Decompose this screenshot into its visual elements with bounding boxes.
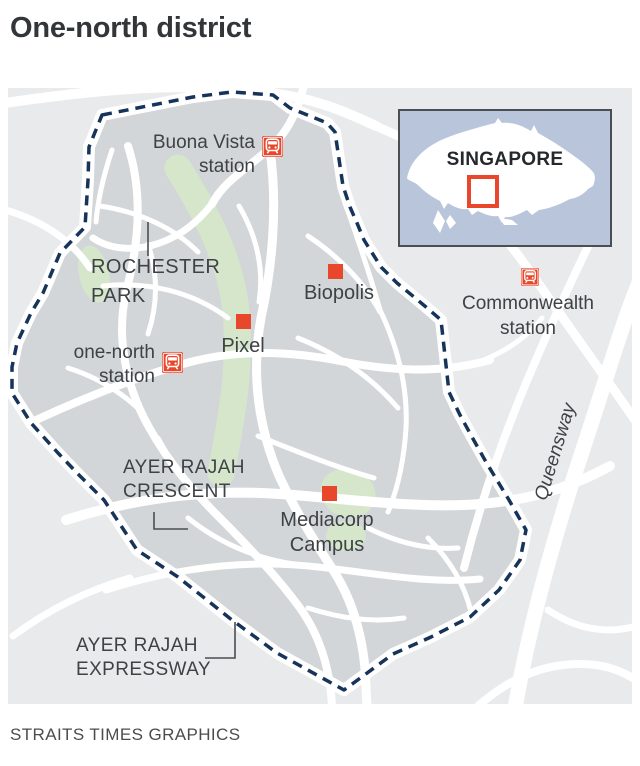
pixel-label: Pixel [183, 334, 303, 358]
ayer-rajah-crescent-label: AYER RAJAH CRESCENT [123, 456, 245, 504]
one-north-line1: one-north [20, 341, 155, 365]
ayer-rajah-crescent-line1: AYER RAJAH [123, 456, 245, 480]
one-north-line2: station [20, 365, 155, 389]
page-title: One-north district [10, 12, 251, 45]
commonwealth-line1: Commonwealth [433, 291, 623, 316]
buona-vista-station-label: Buona Vista station [95, 131, 255, 179]
train-station-icon [521, 268, 539, 286]
biopolis-marker [328, 264, 343, 279]
commonwealth-line2: station [433, 316, 623, 341]
train-station-icon [162, 352, 183, 373]
ayer-rajah-expressway-line1: AYER RAJAH [76, 634, 211, 658]
singapore-inset-map: SINGAPORE [398, 109, 612, 247]
rochester-park-line1: ROCHESTER [91, 253, 220, 282]
one-north-district-graphic: One-north district [0, 0, 640, 766]
rochester-park-label: ROCHESTER PARK [91, 253, 220, 311]
ayer-rajah-expressway-label: AYER RAJAH EXPRESSWAY [76, 634, 211, 682]
buona-vista-line2: station [95, 155, 255, 179]
ayer-rajah-crescent-line2: CRESCENT [123, 480, 245, 504]
mediacorp-marker [322, 486, 337, 501]
credit-line: STRAITS TIMES GRAPHICS [10, 725, 240, 745]
commonwealth-station-label: Commonwealth station [433, 291, 623, 341]
district-map: Buona Vista station ROCHESTER PARK Biopo… [8, 88, 632, 704]
buona-vista-line1: Buona Vista [95, 131, 255, 155]
one-north-station-label: one-north station [20, 341, 155, 389]
train-station-icon [262, 136, 283, 157]
mediacorp-campus-label: Mediacorp Campus [252, 508, 402, 558]
mediacorp-line1: Mediacorp [252, 508, 402, 533]
rochester-park-line2: PARK [91, 282, 220, 311]
singapore-silhouette [400, 111, 610, 245]
inset-country-label: SINGAPORE [400, 149, 610, 171]
ayer-rajah-expressway-line2: EXPRESSWAY [76, 658, 211, 682]
biopolis-label: Biopolis [269, 281, 409, 305]
mediacorp-line2: Campus [252, 533, 402, 558]
pixel-marker [236, 314, 251, 329]
